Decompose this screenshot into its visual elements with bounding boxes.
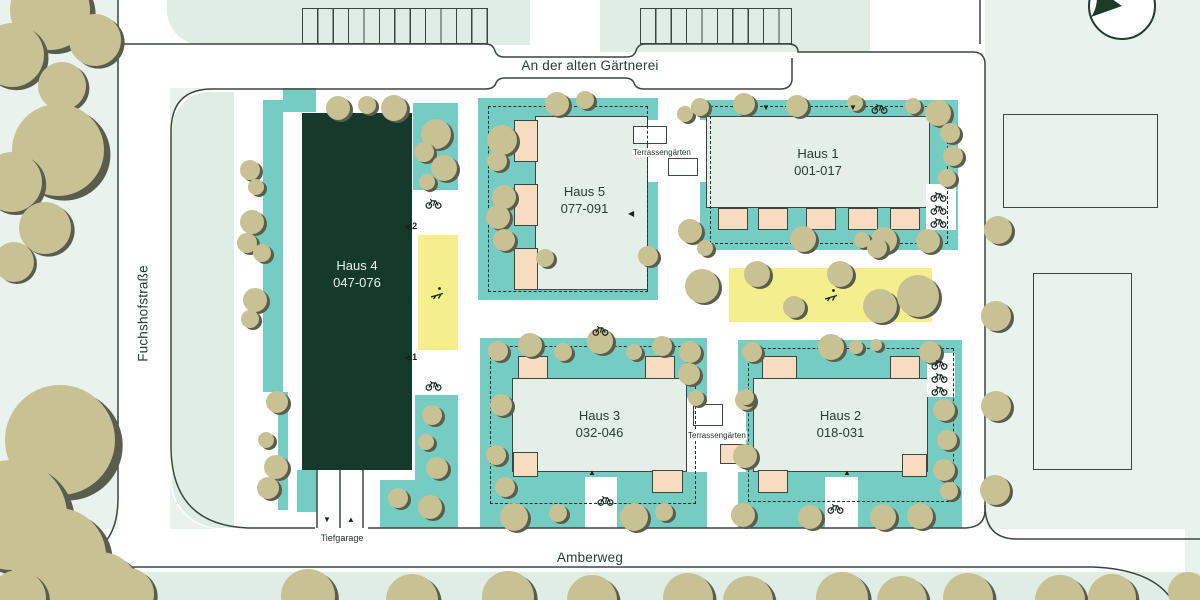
site-plan: An der alten Gärtnerei Fuchshofstraße Am… — [0, 0, 1200, 600]
haus4-name: Haus 4 — [302, 258, 412, 275]
label-haus5: Haus 5 077-091 — [528, 184, 641, 218]
street-label-top: An der alten Gärtnerei — [480, 58, 700, 73]
terrace-gardens-label-bottom: Terrassengärten — [687, 431, 747, 440]
entrance-arrow-icon: ◀ — [404, 223, 410, 231]
haus1-units: 001-017 — [706, 163, 930, 180]
label-haus4: Haus 4 047-076 — [302, 258, 412, 292]
haus3-units: 032-046 — [512, 425, 687, 442]
haus2-units: 018-031 — [753, 425, 928, 442]
boundary-lines — [0, 0, 1200, 600]
entrance-arrow-haus1-a: ▼ — [762, 104, 770, 112]
terrace-garden-plot — [693, 404, 723, 426]
neighbour-building-north — [1003, 114, 1158, 208]
haus3-name: Haus 3 — [512, 408, 687, 425]
neighbour-building-south — [1033, 273, 1132, 470]
terrace-garden-plot — [720, 444, 748, 464]
entrance-1-marker: ◀1 — [404, 353, 417, 362]
haus5-name: Haus 5 — [528, 184, 641, 201]
garage-up-arrow: ▲ — [347, 516, 355, 524]
label-haus2: Haus 2 018-031 — [753, 408, 928, 442]
entrance-arrow-haus3: ▲ — [588, 469, 596, 477]
entrance-2-marker: ◀2 — [404, 222, 417, 231]
entrance-arrow-haus2: ▲ — [843, 469, 851, 477]
entrance-1-number: 1 — [412, 353, 417, 362]
street-label-bottom: Amberweg — [520, 550, 660, 565]
haus1-name: Haus 1 — [706, 146, 930, 163]
label-haus3: Haus 3 032-046 — [512, 408, 687, 442]
haus5-units: 077-091 — [528, 201, 641, 218]
terrace-gardens-label-top: Terrassengärten — [632, 148, 692, 157]
terrace-garden-plot — [668, 158, 698, 176]
entrance-arrow-haus1-b: ▼ — [849, 104, 857, 112]
entrance-arrow-haus5: ◀ — [628, 210, 634, 218]
label-haus1: Haus 1 001-017 — [706, 146, 930, 180]
haus2-name: Haus 2 — [753, 408, 928, 425]
entrance-2-number: 2 — [412, 222, 417, 231]
haus4-units: 047-076 — [302, 275, 412, 292]
tiefgarage-label: Tiefgarage — [310, 533, 374, 543]
garage-down-arrow: ▼ — [323, 516, 331, 524]
entrance-arrow-icon: ◀ — [404, 354, 410, 362]
north-compass-icon — [1088, 0, 1158, 42]
street-label-left: Fuchshofstraße — [136, 239, 151, 389]
